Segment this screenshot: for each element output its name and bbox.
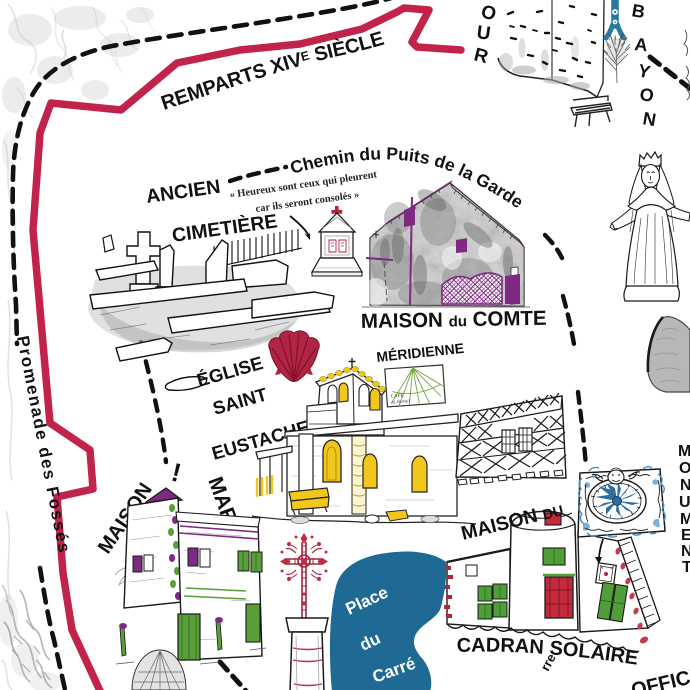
svg-text:T: T [682, 559, 690, 576]
svg-text:U: U [679, 494, 690, 511]
svg-text:A: A [634, 34, 649, 55]
svg-text:E: E [681, 527, 690, 544]
svg-text:N: N [680, 477, 690, 494]
svg-text:M: M [680, 511, 690, 528]
svg-text:U: U [475, 22, 492, 45]
svg-text:N: N [681, 543, 690, 560]
svg-text:O: O [638, 84, 655, 106]
svg-text:M: M [678, 443, 690, 460]
svg-text:O: O [679, 460, 690, 477]
